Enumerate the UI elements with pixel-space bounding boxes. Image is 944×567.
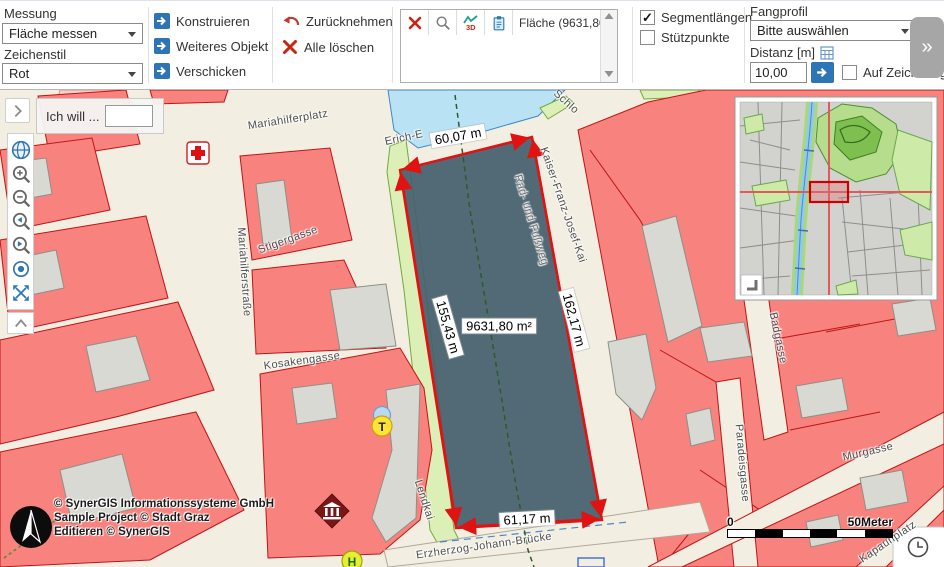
scale-bar: 0 50Meter <box>727 515 893 538</box>
area-label: 9631,80 m² <box>462 319 536 334</box>
results-scrollbar[interactable] <box>600 10 617 82</box>
history-clock-button[interactable] <box>893 527 944 567</box>
inset-extent-rectangle[interactable] <box>810 182 848 202</box>
search-input[interactable] <box>105 105 153 127</box>
measurement-select[interactable]: Fläche messen <box>2 23 143 44</box>
north-arrow <box>10 506 52 548</box>
snap-profile-select[interactable]: Bitte auswählen <box>750 20 916 41</box>
snap-to-drawing-checkbox[interactable] <box>842 65 857 80</box>
construct-button[interactable]: Konstruieren <box>154 13 250 29</box>
undo-button[interactable]: Zurücknehmen <box>282 13 393 29</box>
scroll-up-icon[interactable] <box>604 12 614 20</box>
chevron-down-icon <box>128 32 136 37</box>
zoom-previous-icon[interactable] <box>11 211 31 231</box>
divider <box>632 7 633 83</box>
zoom-out-icon[interactable] <box>11 188 31 208</box>
divider <box>272 7 273 83</box>
chevron-down-icon <box>901 29 909 34</box>
scroll-down-icon[interactable] <box>604 70 614 78</box>
style-select[interactable]: Rot <box>2 63 143 84</box>
segment-lengths-checkbox[interactable]: ✓ <box>640 10 655 25</box>
measurement-label: Messung <box>4 6 57 21</box>
arrow-right-icon <box>154 38 170 54</box>
arrow-right-icon <box>154 13 170 29</box>
result-row[interactable]: 3D Fläche (9631,80 m²) <box>401 10 600 35</box>
apply-distance-button[interactable] <box>811 62 834 83</box>
toolbar: Messung Fläche messen Zeichenstil Rot Ko… <box>0 0 944 90</box>
distance-input[interactable] <box>750 62 807 83</box>
chevron-up-icon <box>12 316 30 330</box>
double-chevron-icon: » <box>921 36 932 59</box>
divider <box>744 7 745 83</box>
result-entry[interactable]: Fläche (9631,80 m²) <box>513 10 600 35</box>
transit-stop-symbol: H <box>342 551 362 567</box>
center-map-icon[interactable] <box>11 259 31 279</box>
inset-resize-handle[interactable] <box>741 275 762 295</box>
copyright-notice: © SynerGIS Informationssysteme GmbH Samp… <box>54 497 274 539</box>
zoom-next-icon[interactable] <box>11 235 31 255</box>
pan-icon[interactable] <box>11 283 31 303</box>
delete-result-icon[interactable] <box>401 10 429 35</box>
divider <box>148 7 149 83</box>
style-select-value: Rot <box>9 66 29 81</box>
search-panel: Ich will ... <box>36 98 164 134</box>
profile-3d-icon[interactable]: 3D <box>457 10 485 35</box>
send-button[interactable]: Verschicken <box>154 63 246 79</box>
red-cross-symbol <box>187 142 209 164</box>
snap-profile-value: Bitte auswählen <box>757 23 849 38</box>
map-tools-panel <box>7 133 34 310</box>
chevron-down-icon <box>128 72 136 77</box>
arrow-right-icon <box>154 63 170 79</box>
measurement-results-panel: 3D Fläche (9631,80 m²) <box>400 9 618 83</box>
snap-profile-label: Fangprofil <box>750 4 808 19</box>
search-prompt: Ich will ... <box>46 109 99 124</box>
overview-map[interactable] <box>735 97 937 300</box>
map-area: T H <box>0 90 944 567</box>
zoom-in-icon[interactable] <box>11 164 31 184</box>
scale-zero: 0 <box>727 515 734 529</box>
divider <box>392 7 393 83</box>
arrow-right-icon <box>816 66 829 79</box>
next-object-button[interactable]: Weiteres Objekt <box>154 38 268 54</box>
clear-all-button[interactable]: Alle löschen <box>282 39 374 55</box>
scale-segments <box>727 529 893 538</box>
expand-panel-button[interactable]: » <box>910 17 944 78</box>
application-window: Messung Fläche messen Zeichenstil Rot Ko… <box>0 0 944 567</box>
style-label: Zeichenstil <box>4 47 66 62</box>
report-clipboard-icon[interactable] <box>485 10 513 35</box>
globe-full-extent-icon[interactable] <box>11 140 31 160</box>
checkmark: ✓ <box>642 11 653 24</box>
segment-lengths-option: ✓ Segmentlängen <box>640 10 752 25</box>
undo-icon <box>282 13 300 29</box>
delete-x-icon <box>282 39 298 55</box>
support-points-option: Stützpunkte <box>640 30 730 45</box>
segment-length-label-bottom: 61,17 m <box>499 510 555 528</box>
distance-label-row: Distanz [m] <box>750 45 834 60</box>
scale-max: 50Meter <box>848 515 893 529</box>
support-points-checkbox[interactable] <box>640 30 655 45</box>
measurement-select-value: Fläche messen <box>9 26 97 41</box>
taxi-symbol: T <box>372 407 392 437</box>
chevron-right-icon <box>9 102 27 120</box>
svg-text:H: H <box>348 555 357 567</box>
tools-collapse-button[interactable] <box>7 312 34 334</box>
svg-text:3D: 3D <box>466 23 476 32</box>
calculator-icon[interactable] <box>820 46 834 60</box>
zoom-to-result-icon[interactable] <box>429 10 457 35</box>
sidebar-expand-button[interactable] <box>5 98 30 123</box>
svg-text:T: T <box>378 420 386 434</box>
